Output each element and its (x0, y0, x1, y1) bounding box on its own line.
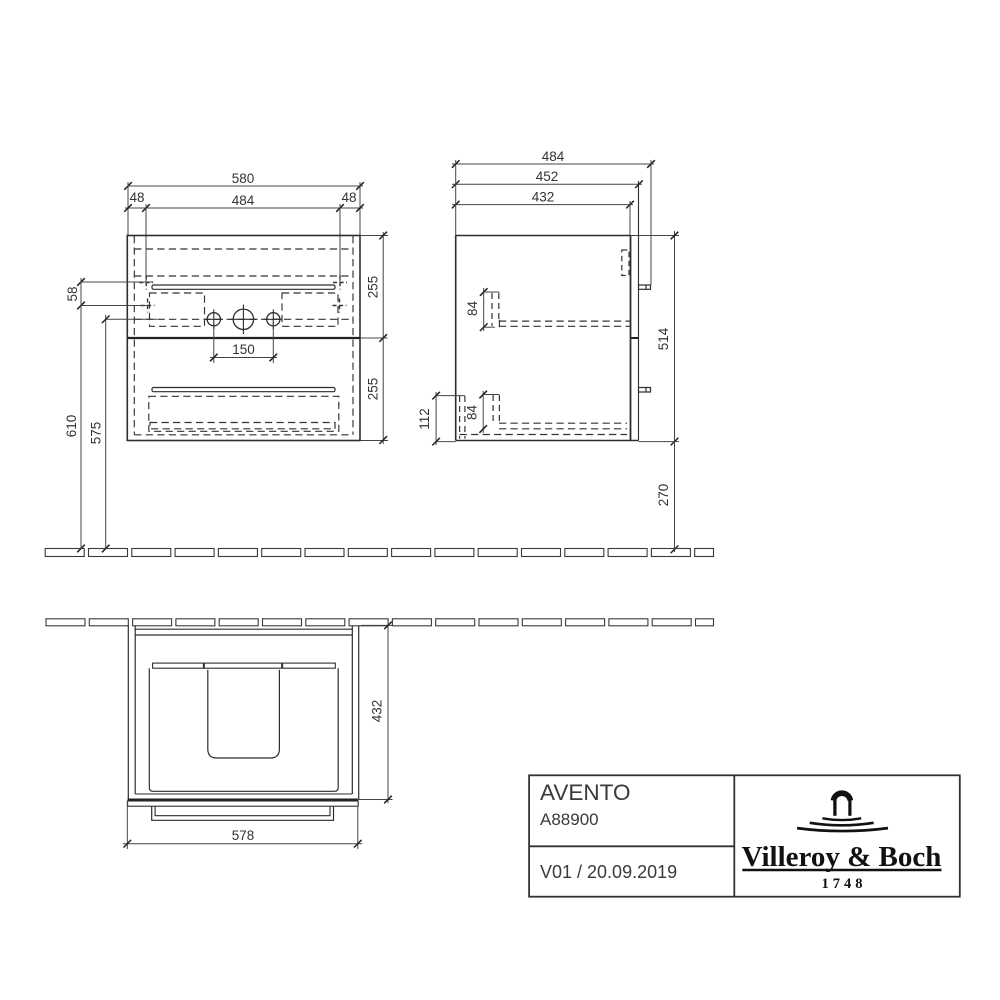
svg-text:575: 575 (89, 422, 104, 445)
svg-text:150: 150 (232, 342, 255, 357)
svg-text:484: 484 (542, 149, 565, 164)
svg-text:1748: 1748 (822, 876, 867, 892)
svg-text:610: 610 (64, 415, 79, 438)
svg-text:48: 48 (129, 190, 144, 205)
svg-text:484: 484 (232, 193, 255, 208)
svg-text:452: 452 (536, 169, 559, 184)
svg-text:255: 255 (366, 378, 381, 401)
svg-text:58: 58 (65, 286, 80, 301)
svg-text:84: 84 (465, 405, 480, 421)
svg-text:112: 112 (417, 408, 432, 430)
svg-text:A88900: A88900 (540, 810, 599, 829)
svg-text:84: 84 (465, 301, 480, 317)
svg-text:270: 270 (656, 484, 671, 507)
svg-text:Villeroy & Boch: Villeroy & Boch (742, 841, 942, 873)
svg-text:V01 / 20.09.2019: V01 / 20.09.2019 (540, 862, 677, 882)
svg-text:578: 578 (232, 828, 255, 843)
svg-text:580: 580 (232, 171, 255, 186)
svg-text:432: 432 (532, 190, 555, 205)
svg-text:432: 432 (370, 700, 385, 723)
svg-text:255: 255 (366, 276, 381, 299)
svg-text:AVENTO: AVENTO (540, 780, 630, 805)
svg-text:514: 514 (656, 327, 671, 350)
svg-text:48: 48 (341, 190, 356, 205)
